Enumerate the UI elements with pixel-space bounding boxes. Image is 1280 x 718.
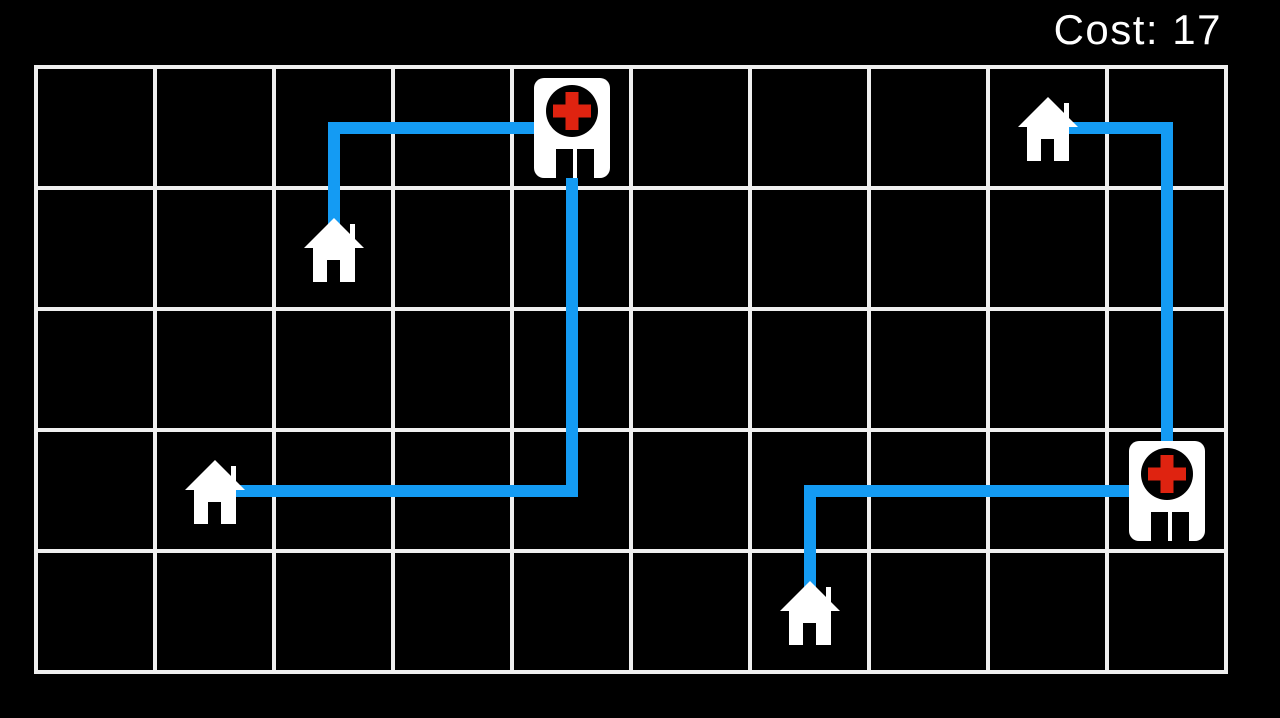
grid-cell[interactable]: [871, 553, 986, 670]
grid-cell[interactable]: [752, 432, 867, 549]
grid-cell[interactable]: [514, 432, 629, 549]
grid-cell[interactable]: [871, 432, 986, 549]
grid-cell[interactable]: [157, 311, 272, 428]
grid-cell[interactable]: [514, 553, 629, 670]
grid-cell[interactable]: [990, 190, 1105, 307]
grid-cell[interactable]: [1109, 553, 1224, 670]
grid-cell[interactable]: [1109, 311, 1224, 428]
grid-cell[interactable]: [871, 190, 986, 307]
grid-cell[interactable]: [276, 190, 391, 307]
grid-cell[interactable]: [752, 69, 867, 186]
grid-cell[interactable]: [1109, 190, 1224, 307]
grid-cell[interactable]: [395, 69, 510, 186]
grid-cell[interactable]: [276, 432, 391, 549]
grid-cell[interactable]: [633, 432, 748, 549]
grid-cell[interactable]: [157, 432, 272, 549]
grid-cell[interactable]: [395, 311, 510, 428]
grid-cell[interactable]: [633, 190, 748, 307]
grid-cell[interactable]: [276, 553, 391, 670]
grid-cell[interactable]: [276, 311, 391, 428]
grid-cell[interactable]: [633, 69, 748, 186]
grid-cell[interactable]: [514, 311, 629, 428]
grid-cell[interactable]: [990, 69, 1105, 186]
grid-cell[interactable]: [514, 69, 629, 186]
grid-cell[interactable]: [38, 432, 153, 549]
grid-cell[interactable]: [38, 553, 153, 670]
grid-cell[interactable]: [990, 311, 1105, 428]
grid-cell[interactable]: [1109, 69, 1224, 186]
cost-label: Cost: 17: [1054, 9, 1222, 51]
grid-cell[interactable]: [752, 190, 867, 307]
grid-cell[interactable]: [871, 311, 986, 428]
grid-cell[interactable]: [276, 69, 391, 186]
grid-cell[interactable]: [990, 553, 1105, 670]
grid-cell[interactable]: [871, 69, 986, 186]
grid-cell[interactable]: [752, 311, 867, 428]
grid-cell[interactable]: [395, 553, 510, 670]
grid-cell[interactable]: [752, 553, 867, 670]
grid-cell[interactable]: [157, 553, 272, 670]
grid-cell[interactable]: [395, 432, 510, 549]
grid-cell[interactable]: [38, 190, 153, 307]
grid-cell[interactable]: [395, 190, 510, 307]
grid-cell[interactable]: [633, 553, 748, 670]
grid-cell[interactable]: [633, 311, 748, 428]
game-board: [34, 65, 1228, 674]
game-stage: Cost: 17: [0, 0, 1280, 718]
grid-cell[interactable]: [157, 190, 272, 307]
grid-cell[interactable]: [157, 69, 272, 186]
grid: [34, 65, 1228, 674]
grid-cell[interactable]: [38, 69, 153, 186]
grid-cell[interactable]: [990, 432, 1105, 549]
grid-cell[interactable]: [1109, 432, 1224, 549]
grid-cell[interactable]: [38, 311, 153, 428]
grid-cell[interactable]: [514, 190, 629, 307]
